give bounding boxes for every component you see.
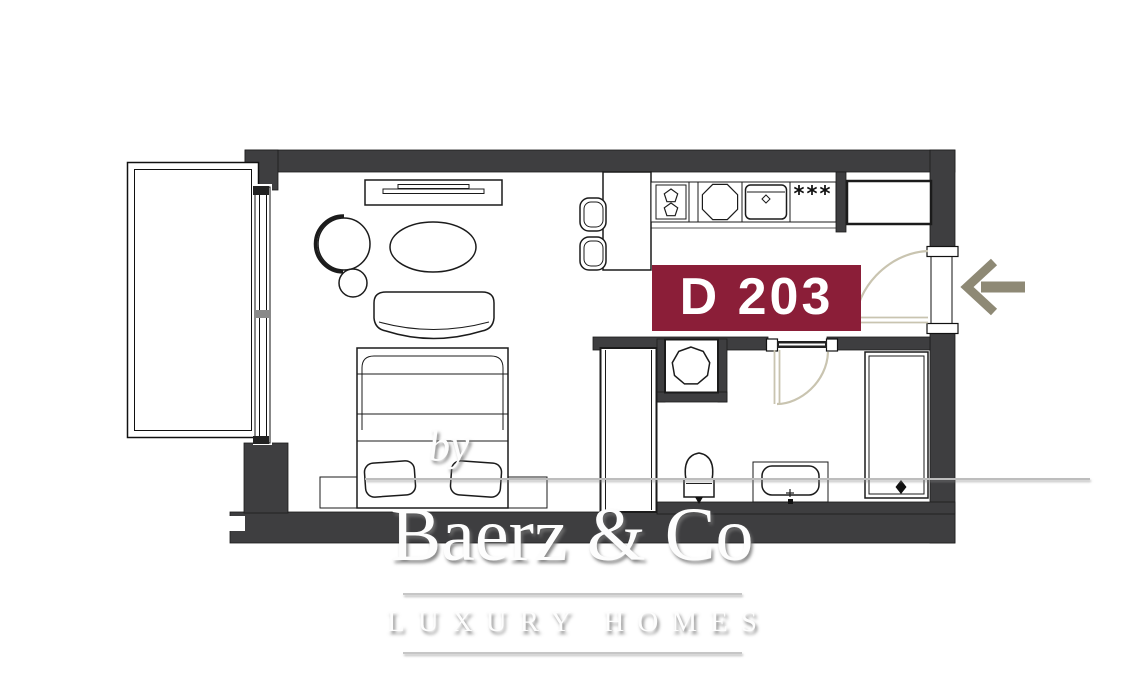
tv — [383, 189, 484, 194]
entry-door-swing — [856, 251, 928, 320]
wardrobe — [601, 348, 657, 512]
bar-stool — [580, 198, 606, 231]
wall-top — [245, 150, 955, 172]
watermark-rule-top — [403, 593, 742, 595]
door-track-line — [779, 344, 825, 346]
freezer-stars-label: *** — [794, 182, 833, 206]
coffee-table — [390, 222, 476, 272]
entry-arrow — [967, 262, 1025, 312]
watermark-brand: Baerz & Co — [322, 492, 822, 579]
bar-counter — [603, 172, 651, 270]
round-sink — [702, 184, 737, 219]
floorplan-canvas: *** — [0, 0, 1146, 685]
window-bottom-junction — [253, 436, 269, 444]
watermark-rule-bottom — [403, 652, 742, 654]
window-mid-mullion — [254, 310, 269, 318]
wall-mid-right — [827, 337, 930, 350]
shower-inner — [869, 356, 924, 494]
floorplan-svg: *** — [0, 0, 1146, 685]
wall-right-upper — [930, 150, 955, 250]
balcony-inner-rail — [135, 170, 252, 431]
tv-stand — [398, 185, 469, 189]
sliding-window — [253, 184, 272, 445]
sofa — [374, 292, 494, 339]
door-jamb — [767, 339, 778, 351]
door-jamb — [927, 324, 958, 334]
unit-label: D 203 — [652, 265, 861, 331]
entry-door — [856, 247, 958, 334]
washing-machine-drum — [672, 347, 709, 384]
tall-cabinet — [847, 181, 931, 224]
watermark-rule-long — [365, 478, 1090, 480]
bathroom-door — [767, 339, 838, 404]
balcony — [128, 163, 259, 438]
watermark-tagline: LUXURY HOMES — [322, 606, 822, 639]
bathroom — [601, 340, 929, 513]
wall-left-bottom-block — [244, 443, 288, 513]
armchair — [318, 218, 370, 270]
wall-bottom-notch — [228, 516, 245, 531]
ottoman — [339, 269, 367, 297]
door-jamb — [927, 247, 958, 257]
watermark-prefix: by — [427, 415, 540, 472]
door-jamb — [827, 339, 838, 351]
wall-kitchen-pillar — [836, 172, 846, 232]
bar-stool — [580, 237, 606, 270]
window-top-junction — [253, 186, 269, 195]
bathroom-door-swing — [777, 352, 828, 404]
kitchen — [580, 172, 931, 270]
